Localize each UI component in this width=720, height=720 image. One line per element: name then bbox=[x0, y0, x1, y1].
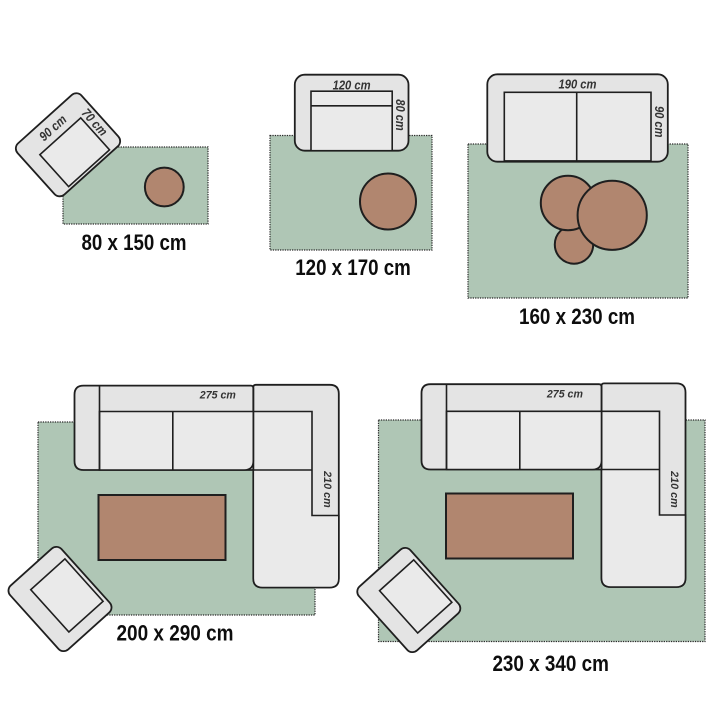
svg-text:80 x 150 cm: 80 x 150 cm bbox=[82, 230, 187, 255]
svg-text:90 cm: 90 cm bbox=[652, 106, 667, 138]
svg-text:160 x 230 cm: 160 x 230 cm bbox=[519, 304, 635, 329]
svg-text:120 x 170 cm: 120 x 170 cm bbox=[295, 255, 411, 280]
svg-text:275 cm: 275 cm bbox=[199, 390, 236, 402]
svg-text:275 cm: 275 cm bbox=[546, 388, 583, 400]
svg-text:80 cm: 80 cm bbox=[393, 99, 408, 131]
svg-text:210 cm: 210 cm bbox=[321, 470, 333, 508]
svg-text:120 cm: 120 cm bbox=[333, 77, 371, 92]
svg-text:210 cm: 210 cm bbox=[668, 470, 680, 508]
svg-text:200 x 290 cm: 200 x 290 cm bbox=[117, 620, 234, 645]
svg-text:230 x 340 cm: 230 x 340 cm bbox=[492, 651, 609, 676]
svg-text:190 cm: 190 cm bbox=[559, 76, 597, 91]
